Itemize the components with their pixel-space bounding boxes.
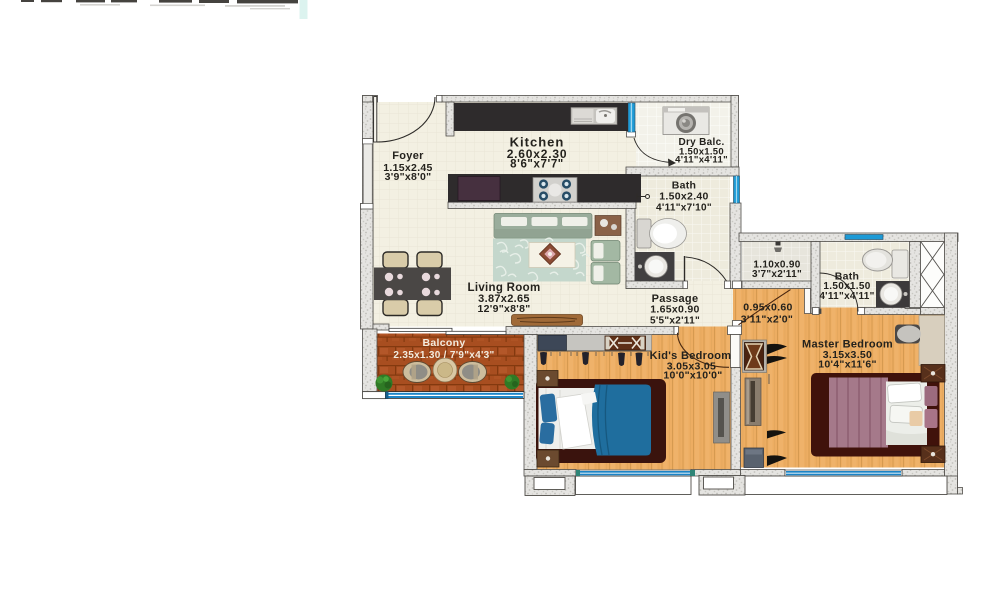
svg-text:10'4"x11'6": 10'4"x11'6" (818, 359, 877, 371)
svg-text:3'11"x2'0": 3'11"x2'0" (741, 314, 793, 326)
svg-text:3'7"x2'11": 3'7"x2'11" (752, 269, 802, 280)
svg-text:4'11"x4'11": 4'11"x4'11" (675, 155, 728, 166)
svg-text:4'11"x7'10": 4'11"x7'10" (656, 203, 712, 214)
svg-text:1.65x0.90: 1.65x0.90 (650, 304, 699, 316)
svg-text:0.95x0.60: 0.95x0.60 (743, 302, 792, 314)
svg-text:8'6"x7'7": 8'6"x7'7" (510, 158, 564, 170)
svg-text:12'9"x8'8": 12'9"x8'8" (478, 303, 531, 315)
svg-text:1.50x2.40: 1.50x2.40 (659, 191, 708, 203)
svg-text:5'5"x2'11": 5'5"x2'11" (650, 315, 700, 326)
svg-text:10'0"x10'0": 10'0"x10'0" (663, 370, 722, 382)
svg-text:4'11"x4'11": 4'11"x4'11" (819, 291, 874, 302)
svg-text:2.35x1.30 / 7'9"x4'3": 2.35x1.30 / 7'9"x4'3" (393, 350, 494, 361)
svg-text:3'9"x8'0": 3'9"x8'0" (385, 171, 432, 183)
svg-text:Foyer: Foyer (392, 150, 424, 162)
svg-text:Balcony: Balcony (423, 337, 466, 349)
